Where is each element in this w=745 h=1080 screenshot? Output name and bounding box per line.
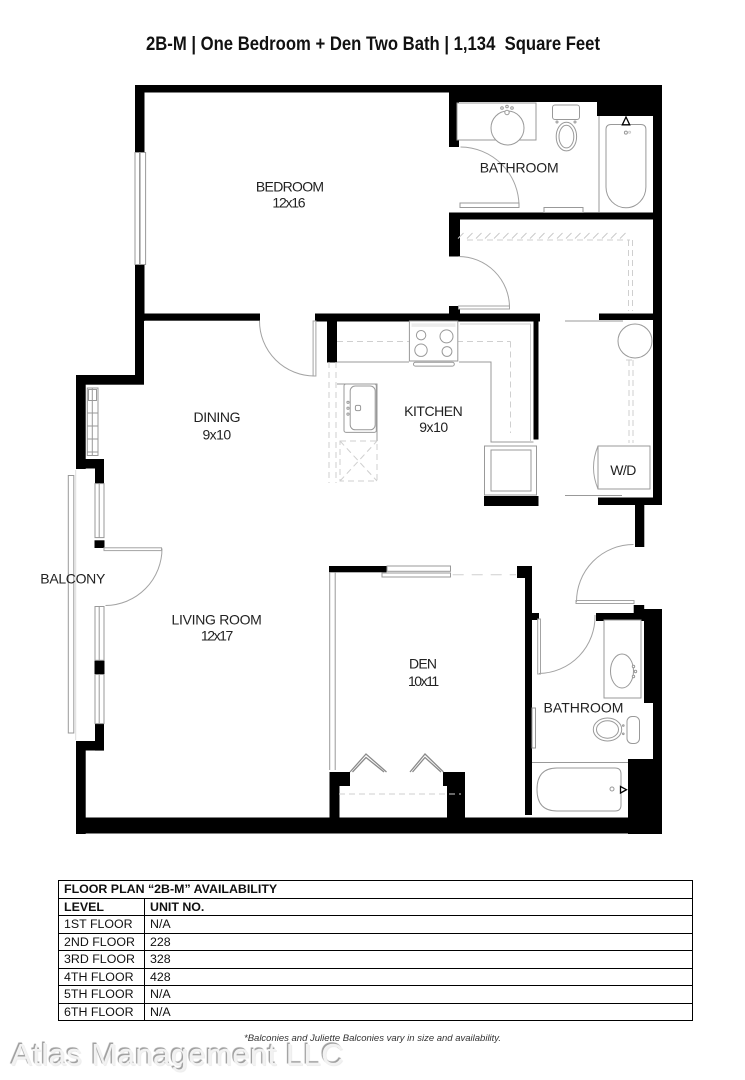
svg-text:BALCONY: BALCONY (40, 570, 106, 586)
svg-text:BATHROOM: BATHROOM (544, 700, 624, 716)
svg-text:2B-M | One Bedroom + Den Two B: 2B-M | One Bedroom + Den Two Bath | 1,13… (146, 34, 601, 55)
svg-text:BATHROOM: BATHROOM (480, 160, 559, 176)
svg-text:12x16: 12x16 (272, 195, 305, 211)
svg-text:W/D: W/D (610, 462, 636, 478)
svg-text:9x10: 9x10 (419, 419, 448, 435)
svg-text:DINING: DINING (194, 409, 241, 425)
svg-text:KITCHEN: KITCHEN (404, 403, 463, 419)
svg-text:LIVING ROOM: LIVING ROOM (172, 611, 262, 627)
svg-text:BEDROOM: BEDROOM (256, 178, 324, 194)
svg-text:DEN: DEN (409, 656, 437, 672)
svg-text:10x11: 10x11 (408, 673, 439, 689)
svg-text:12x17: 12x17 (201, 628, 234, 644)
svg-text:9x10: 9x10 (202, 427, 231, 443)
